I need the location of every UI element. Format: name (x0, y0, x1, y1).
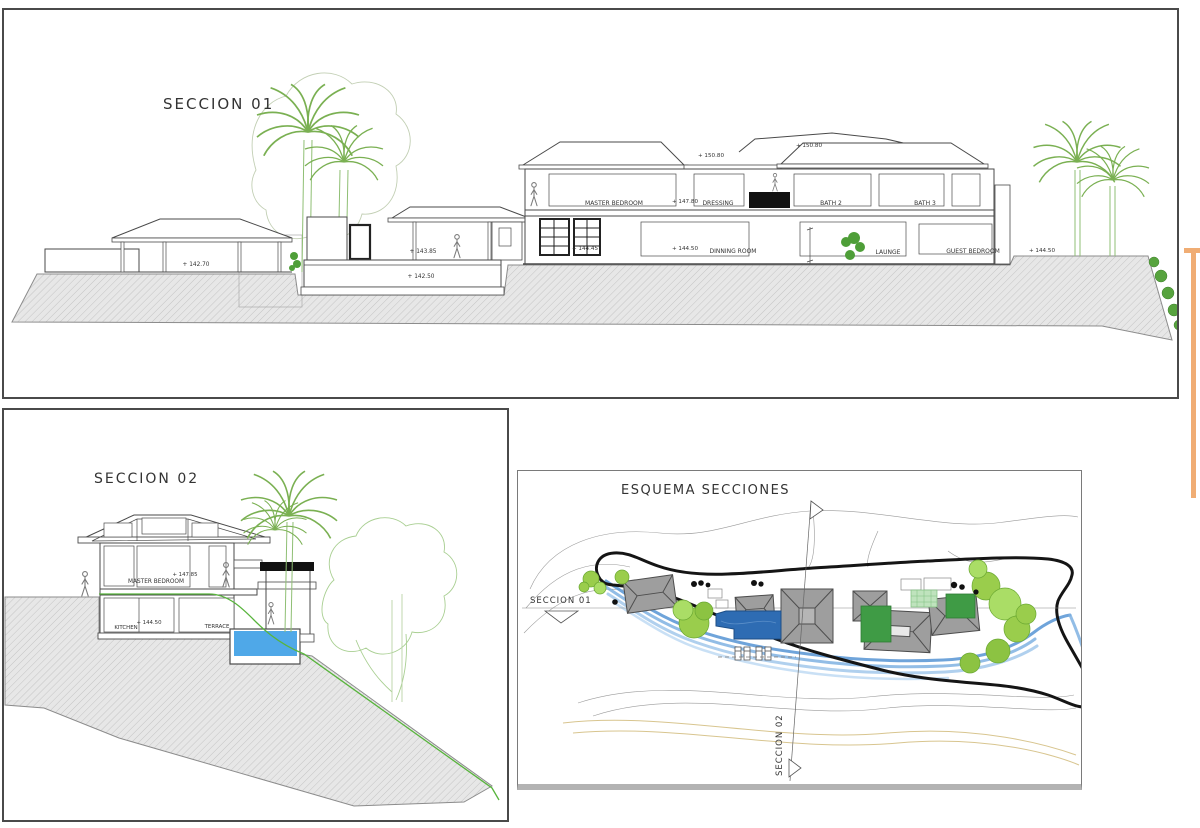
elevation-label: + 142.70 (183, 262, 210, 268)
person-figure (268, 603, 274, 624)
elevation-label: + 144.50 (136, 620, 162, 626)
background-trees (322, 518, 457, 702)
elevation-label: + 144.50 (1029, 248, 1055, 254)
panel-seccion-02: MASTER BEDROOM + 147.85 KITCHEN + 144.50… (2, 408, 509, 822)
lattice-area (911, 590, 937, 607)
section-marker-label: SECCION 01 (530, 596, 592, 606)
panel-title: SECCION 02 (94, 471, 199, 487)
room-label: MASTER BEDROOM (585, 200, 643, 207)
elevation-label: + 143.85 (410, 249, 437, 255)
panel-title: ESQUEMA SECCIONES (621, 483, 790, 498)
room-label: DINNING ROOM (710, 248, 757, 255)
elevation-label: + 150.80 (698, 153, 724, 159)
palm-tree (241, 471, 337, 632)
person-figure (82, 572, 88, 596)
room-label: GUEST BEDROOM (946, 248, 1000, 255)
left-garage-pavilion (45, 219, 292, 272)
seccion-02-drawing: MASTER BEDROOM + 147.85 KITCHEN + 144.50… (4, 410, 507, 820)
roof-central-pavilion (781, 589, 833, 643)
room-label: BATH 3 (914, 200, 936, 207)
panel-esquema-secciones: SECCION 01 SECCION 02 ESQUEMA SECCIONES (517, 470, 1082, 790)
esquema-drawing: SECCION 01 SECCION 02 ESQUEMA SECCIONES (518, 471, 1081, 784)
pool-plan (716, 611, 781, 639)
person-figure (454, 235, 460, 258)
room-label: MASTER BEDROOM (128, 579, 184, 585)
ground-hatch (12, 256, 1172, 340)
main-house (519, 133, 1010, 264)
room-label: KITCHEN (114, 625, 137, 631)
room-label: TERRACE (204, 624, 230, 630)
panel-title: SECCION 01 (163, 95, 274, 113)
room-label: BATH 2 (820, 200, 842, 207)
room-label: LAUNGE (876, 249, 901, 256)
elevation-label: + 144.45 (572, 246, 598, 252)
elevation-label: + 142.50 (408, 274, 435, 280)
section-marker-label: SECCION 02 (775, 714, 785, 776)
panel-seccion-01: + 142.70 + 143.85 + 142.50 (2, 8, 1179, 399)
room-label: DRESSING (702, 200, 733, 207)
elevation-label: + 150.80 (796, 143, 822, 149)
contour-lines-tan (563, 720, 1079, 765)
roof-left (623, 575, 677, 614)
drawing-sheet: + 142.70 + 143.85 + 142.50 (0, 0, 1200, 828)
elevation-label: + 147.80 (672, 199, 698, 205)
ground-slope-hatch (5, 597, 492, 806)
palm-trees-right (1034, 121, 1150, 256)
shrub (289, 252, 301, 271)
adjacent-frame-edge (1191, 248, 1196, 498)
elevation-label: + 147.85 (172, 572, 197, 578)
seccion-01-drawing: + 142.70 + 143.85 + 142.50 (4, 10, 1177, 397)
elevation-label: + 144.50 (672, 246, 698, 252)
